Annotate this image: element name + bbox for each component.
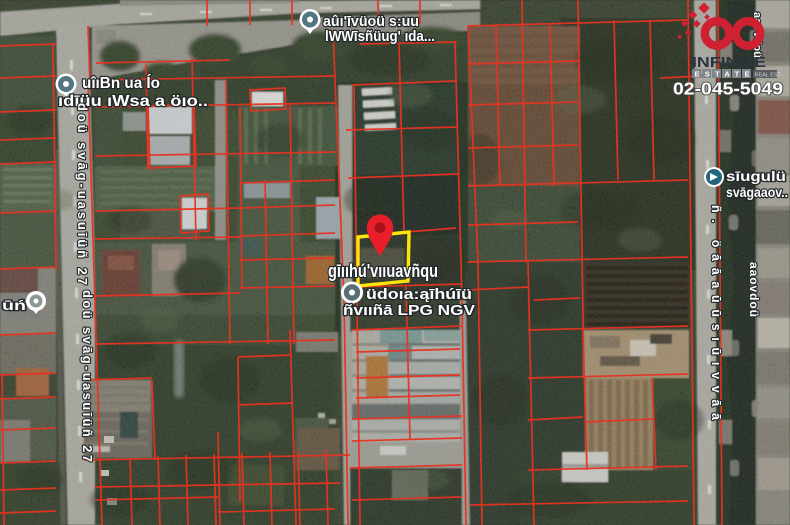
svg-text:lWWīsñüug' ıda...: lWWīsñüug' ıda... xyxy=(325,28,435,45)
svg-text:ūń: ūń xyxy=(2,297,26,313)
svg-text:sīugulü: sīugulü xyxy=(726,168,786,184)
svg-text:doü svāg-uasuīüñ 27: doü svāg-uasuīüñ 27 xyxy=(75,103,90,285)
svg-text:svāgaaov..: svāgaaov.. xyxy=(726,184,788,200)
svg-text:aaovdoü: aaovdoü xyxy=(747,262,761,317)
svg-text:ñvııñā LPG NGV: ñvııñā LPG NGV xyxy=(343,302,475,319)
svg-text:INFINITE: INFINITE xyxy=(692,54,766,71)
svg-text:ESTATE: ESTATE xyxy=(695,70,755,79)
svg-text:doü svāg-uasuīüñ 27: doü svāg-uasuīüñ 27 xyxy=(80,290,95,462)
svg-text:gīııhú'vııuavñqu: gīııhú'vııuavñqu xyxy=(328,261,438,281)
svg-text:uîıBn ua Ío: uîıBn ua Ío xyxy=(82,73,160,92)
svg-text:üdoıa:ąīhúīü: üdoıa:ąīhúīü xyxy=(366,286,472,303)
svg-text:02-045-5049: 02-045-5049 xyxy=(673,79,783,99)
